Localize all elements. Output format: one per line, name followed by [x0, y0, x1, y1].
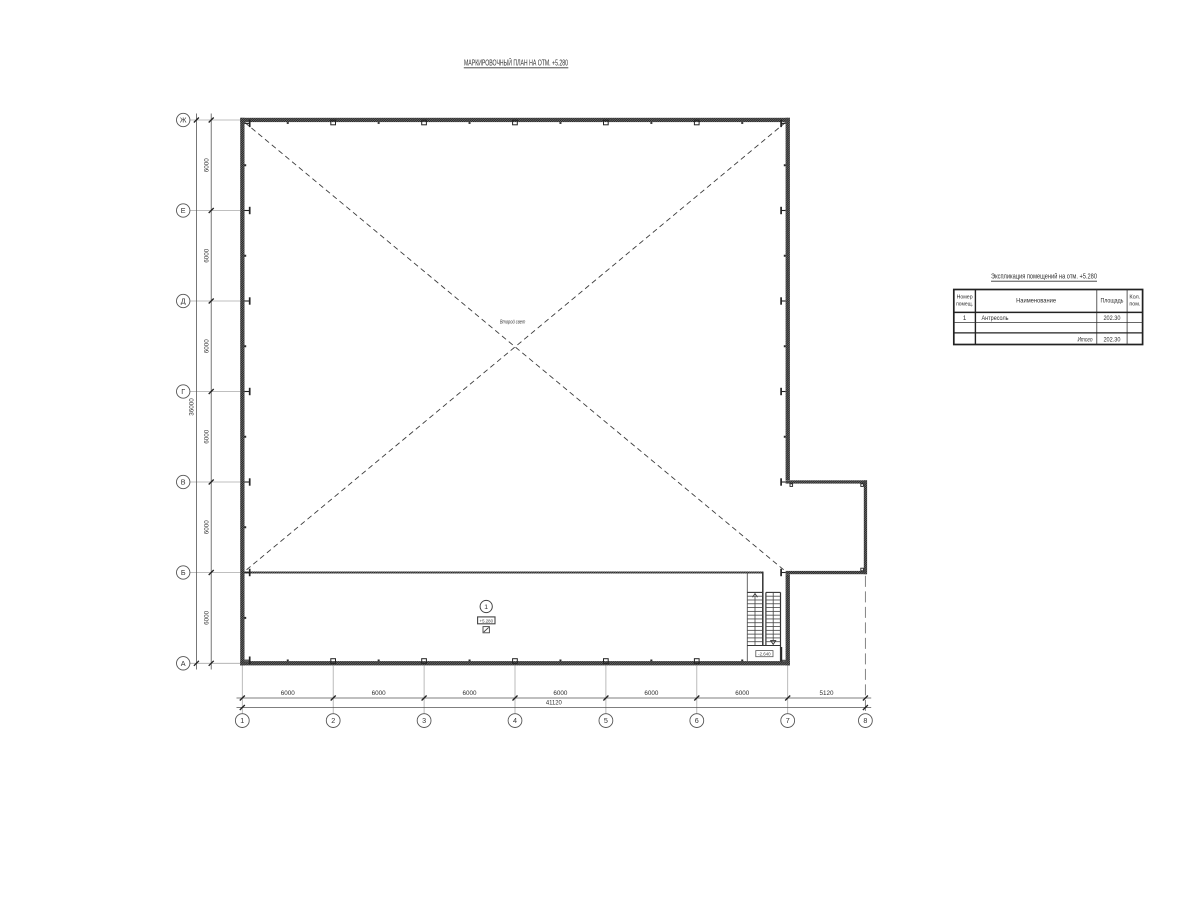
svg-text:1: 1 [240, 716, 244, 725]
svg-text:Ж: Ж [180, 116, 187, 125]
svg-text:202.30: 202.30 [1103, 336, 1120, 343]
svg-text:6000: 6000 [203, 610, 210, 625]
svg-text:41120: 41120 [546, 700, 563, 707]
svg-text:6000: 6000 [463, 690, 478, 697]
svg-text:6000: 6000 [372, 690, 387, 697]
svg-text:Наименование: Наименование [1016, 298, 1056, 305]
svg-text:6000: 6000 [203, 429, 210, 444]
svg-text:А: А [181, 659, 186, 668]
svg-text:Экспликация помещений на отм.: Экспликация помещений на отм. +5.280 [991, 272, 1097, 281]
svg-text:6000: 6000 [735, 690, 750, 697]
svg-text:5: 5 [604, 716, 608, 725]
svg-text:6000: 6000 [553, 690, 568, 697]
svg-text:6000: 6000 [203, 339, 210, 354]
svg-text:Номер: Номер [957, 294, 974, 300]
svg-text:36000: 36000 [189, 398, 196, 416]
svg-text:Итого: Итого [1078, 336, 1093, 343]
svg-text:1: 1 [484, 604, 488, 611]
svg-text:В: В [181, 478, 186, 487]
svg-text:4: 4 [513, 716, 517, 725]
svg-text:6: 6 [695, 716, 699, 725]
svg-text:7: 7 [786, 716, 790, 725]
svg-text:2: 2 [331, 716, 335, 725]
svg-text:1: 1 [963, 315, 967, 322]
svg-text:+5.280: +5.280 [480, 618, 494, 624]
svg-text:Антресоль: Антресоль [982, 315, 1009, 322]
svg-text:6000: 6000 [203, 158, 210, 173]
svg-text:Б: Б [181, 568, 186, 577]
svg-text:8: 8 [863, 716, 867, 725]
svg-text:Г: Г [181, 387, 185, 396]
svg-text:помещ.: помещ. [956, 302, 973, 308]
svg-text:6000: 6000 [203, 248, 210, 263]
svg-text:202.30: 202.30 [1103, 315, 1120, 322]
svg-text:5120: 5120 [820, 690, 835, 697]
svg-text:6000: 6000 [281, 690, 296, 697]
svg-text:6000: 6000 [203, 520, 210, 535]
svg-text:Второй свет: Второй свет [500, 318, 525, 325]
svg-text:пом.: пом. [1129, 302, 1140, 308]
svg-text:3: 3 [422, 716, 426, 725]
svg-text:6000: 6000 [644, 690, 659, 697]
svg-text:Кол.: Кол. [1129, 294, 1140, 300]
svg-text:Д: Д [181, 297, 186, 306]
svg-text:МАРКИРОВОЧНЫЙ ПЛАН НА ОТМ. +5.: МАРКИРОВОЧНЫЙ ПЛАН НА ОТМ. +5.280 [464, 57, 568, 68]
svg-text:Площадь: Площадь [1100, 298, 1124, 305]
svg-text:Е: Е [181, 206, 186, 215]
svg-text:-2.640: -2.640 [758, 651, 771, 656]
